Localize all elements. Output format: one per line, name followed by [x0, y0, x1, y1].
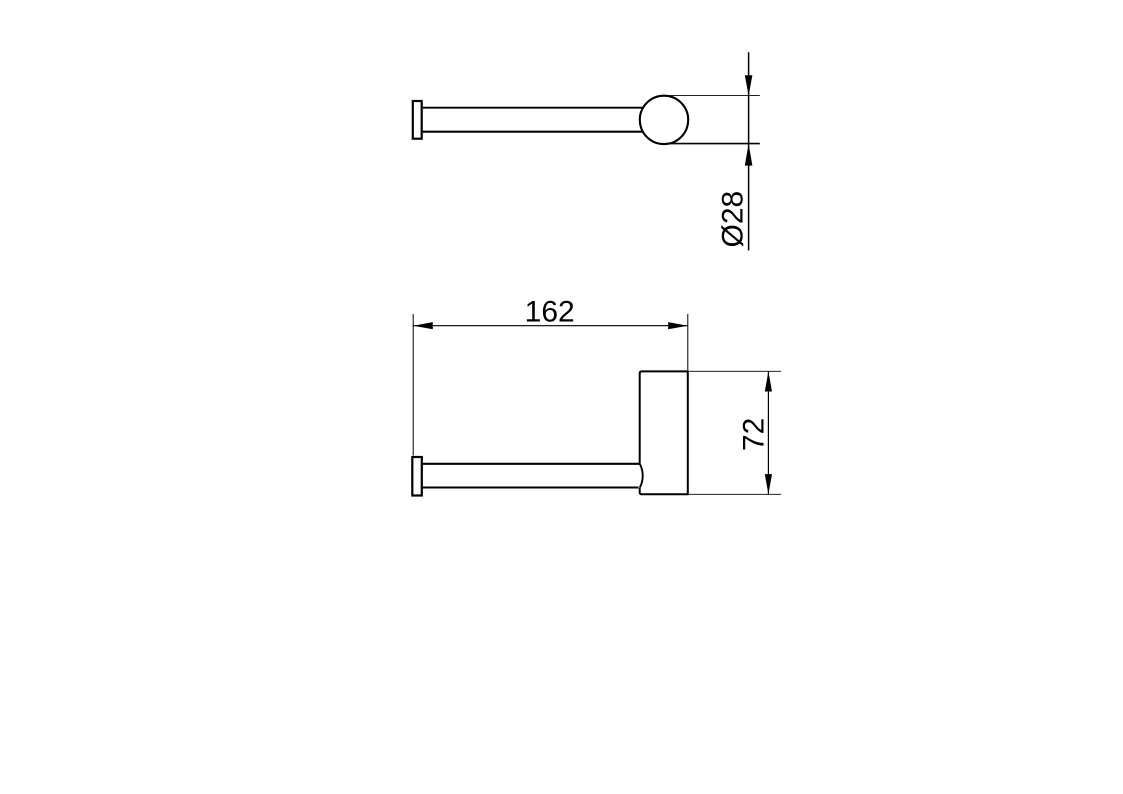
svg-text:72: 72 — [737, 418, 770, 451]
svg-text:Ø28: Ø28 — [717, 191, 750, 248]
svg-text:162: 162 — [525, 295, 575, 328]
